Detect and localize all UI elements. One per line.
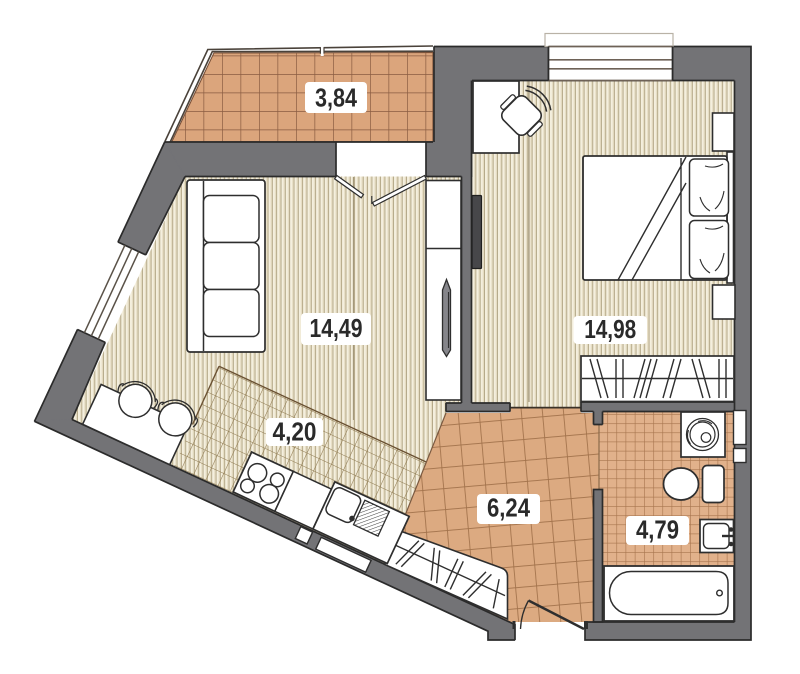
svg-text:3,84: 3,84 (315, 83, 357, 113)
svg-text:14,98: 14,98 (584, 314, 636, 344)
svg-text:14,49: 14,49 (310, 313, 363, 343)
svg-text:6,24: 6,24 (487, 493, 530, 523)
svg-text:4,20: 4,20 (273, 417, 317, 447)
svg-text:4,79: 4,79 (636, 515, 679, 545)
